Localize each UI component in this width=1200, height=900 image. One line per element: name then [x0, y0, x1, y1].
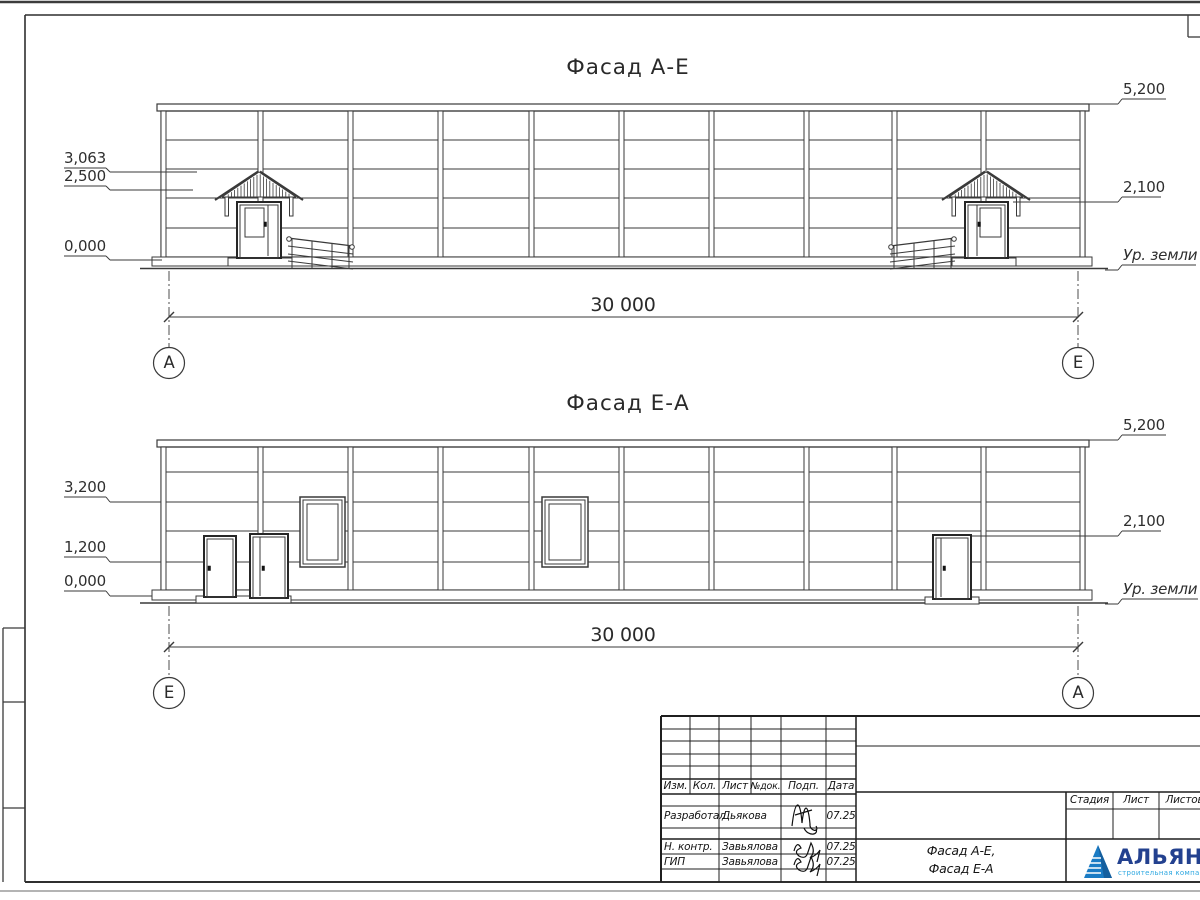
titleblock-name-ncontr: Завьялова	[722, 842, 778, 853]
level-label-3200: 3,200	[46, 480, 106, 495]
doc-title-line2: Фасад Е-А	[856, 863, 1066, 876]
level-label-5200-bottom: 5,200	[1123, 418, 1165, 433]
ground-label-top: Ур. земли	[1123, 248, 1197, 263]
level-label-3063: 3,063	[46, 151, 106, 166]
dim-label-top: 30 000	[558, 296, 688, 315]
company-logo-subtitle: строительная компания	[1118, 870, 1200, 877]
level-label-0000-bottom: 0,000	[46, 574, 106, 589]
doc-title-line1: Фасад А-Е,	[856, 845, 1066, 858]
axis-bubble-label: А	[149, 355, 189, 372]
titleblock-role-gip: ГИП	[664, 857, 685, 868]
ground-label-bottom: Ур. земли	[1123, 582, 1197, 597]
axis-bubble-label: Е	[149, 685, 189, 702]
dim-label-bottom: 30 000	[558, 626, 688, 645]
cad-linework	[0, 0, 1200, 900]
axis-bubble-label: Е	[1058, 355, 1098, 372]
titleblock-sheets-header: Листов	[1159, 795, 1200, 806]
level-label-2100-bottom: 2,100	[1123, 514, 1165, 529]
titleblock-name-dev: Дьякова	[722, 811, 767, 822]
titleblock-date-ncontr: 07.25	[826, 842, 856, 853]
facade-bottom-title: Фасад Е-А	[478, 393, 778, 415]
titleblock-col-izm: Изм.	[661, 781, 690, 792]
level-label-1200: 1,200	[46, 540, 106, 555]
titleblock-stage-header: Стадия	[1066, 795, 1113, 806]
level-label-5200-top: 5,200	[1123, 82, 1165, 97]
titleblock-name-gip: Завьялова	[722, 857, 778, 868]
titleblock-sheet-header: Лист	[1113, 795, 1159, 806]
titleblock-col-kol: Кол.	[690, 781, 719, 792]
company-logo-text: АЛЬЯНС	[1117, 847, 1200, 868]
titleblock-date-gip: 07.25	[826, 857, 856, 868]
titleblock-date-dev: 07.25	[826, 811, 856, 822]
titleblock-col-data: Дата	[826, 781, 856, 792]
drawing-sheet: Фасад А-Е 3,063 2,500 0,000 5,200 2,100 …	[0, 0, 1200, 900]
titleblock-col-list: Лист	[719, 781, 751, 792]
level-label-2100-top: 2,100	[1123, 180, 1165, 195]
titleblock-role-ncontr: Н. контр.	[664, 842, 713, 853]
titleblock-col-podp: Подп.	[781, 781, 826, 792]
facade-top-title: Фасад А-Е	[478, 57, 778, 79]
titleblock-col-ndok: №док.	[750, 782, 781, 792]
titleblock-role-dev: Разработал	[664, 811, 726, 822]
axis-bubble-label: А	[1058, 685, 1098, 702]
level-label-0000-top: 0,000	[46, 239, 106, 254]
level-label-2500: 2,500	[46, 169, 106, 184]
